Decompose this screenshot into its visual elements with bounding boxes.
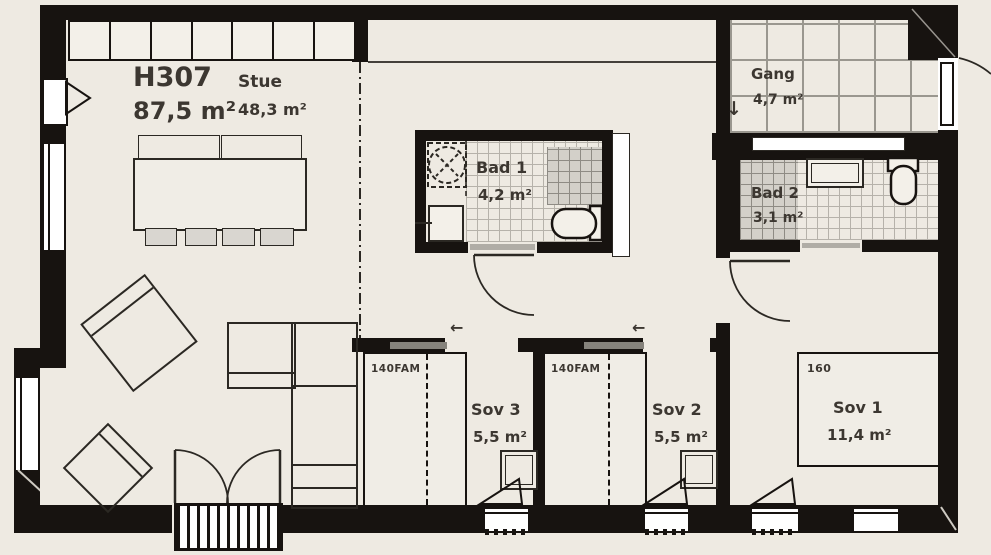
room-label-sov3: Sov 3 [471,402,521,418]
room-area-sov2: 5,5 m² [654,430,708,445]
room-label-bad1: Bad 1 [476,160,527,176]
room-area-bad1: 4,2 m² [478,188,532,203]
bad1-toilet-bowl [552,209,596,238]
room-area-gang: 4,7 m² [753,93,803,107]
bad2-toilet-bowl [891,166,916,204]
window-sov2-opening-symbol [645,479,687,504]
room-label-gang: Gang [751,67,795,82]
room-label-stue: Stue [238,74,282,91]
room-area-stue: 48,3 m² [238,102,307,118]
room-label-sov1: Sov 1 [833,400,883,416]
entry-door-arc [959,58,991,74]
sov3-sliding-door-arrow: ← [450,320,463,336]
room-label-bad2: Bad 2 [751,186,799,201]
bad1-door-arc [474,255,534,315]
unit-id-label: H307 [133,64,212,91]
room-area-bad2: 3,1 m² [753,211,803,225]
window-sov1-opening-symbol [753,479,795,504]
window-sov3-opening-symbol [480,479,522,504]
gang-stair-arrow: ↓ [726,100,742,119]
corner-hatch-top-right [912,9,955,57]
floor-plan: 140FAM 140FAM 160 [0,0,991,555]
room-area-sov3: 5,5 m² [473,430,527,445]
balcony-door-arc-right [227,450,280,503]
unit-area-label: 87,5 m² [133,99,236,123]
window-left-small-opening-symbol [66,82,90,114]
room-area-sov1: 11,4 m² [827,428,891,443]
balcony-door-arc-left [175,450,228,503]
corner-hatch-bottom-right [941,507,956,530]
washer-cross-2 [436,154,458,176]
sov2-sliding-door-arrow: ← [632,320,645,336]
sov1-door-arc [730,261,790,321]
corner-hatch-bottom-left [18,470,55,504]
room-label-sov2: Sov 2 [652,402,702,418]
